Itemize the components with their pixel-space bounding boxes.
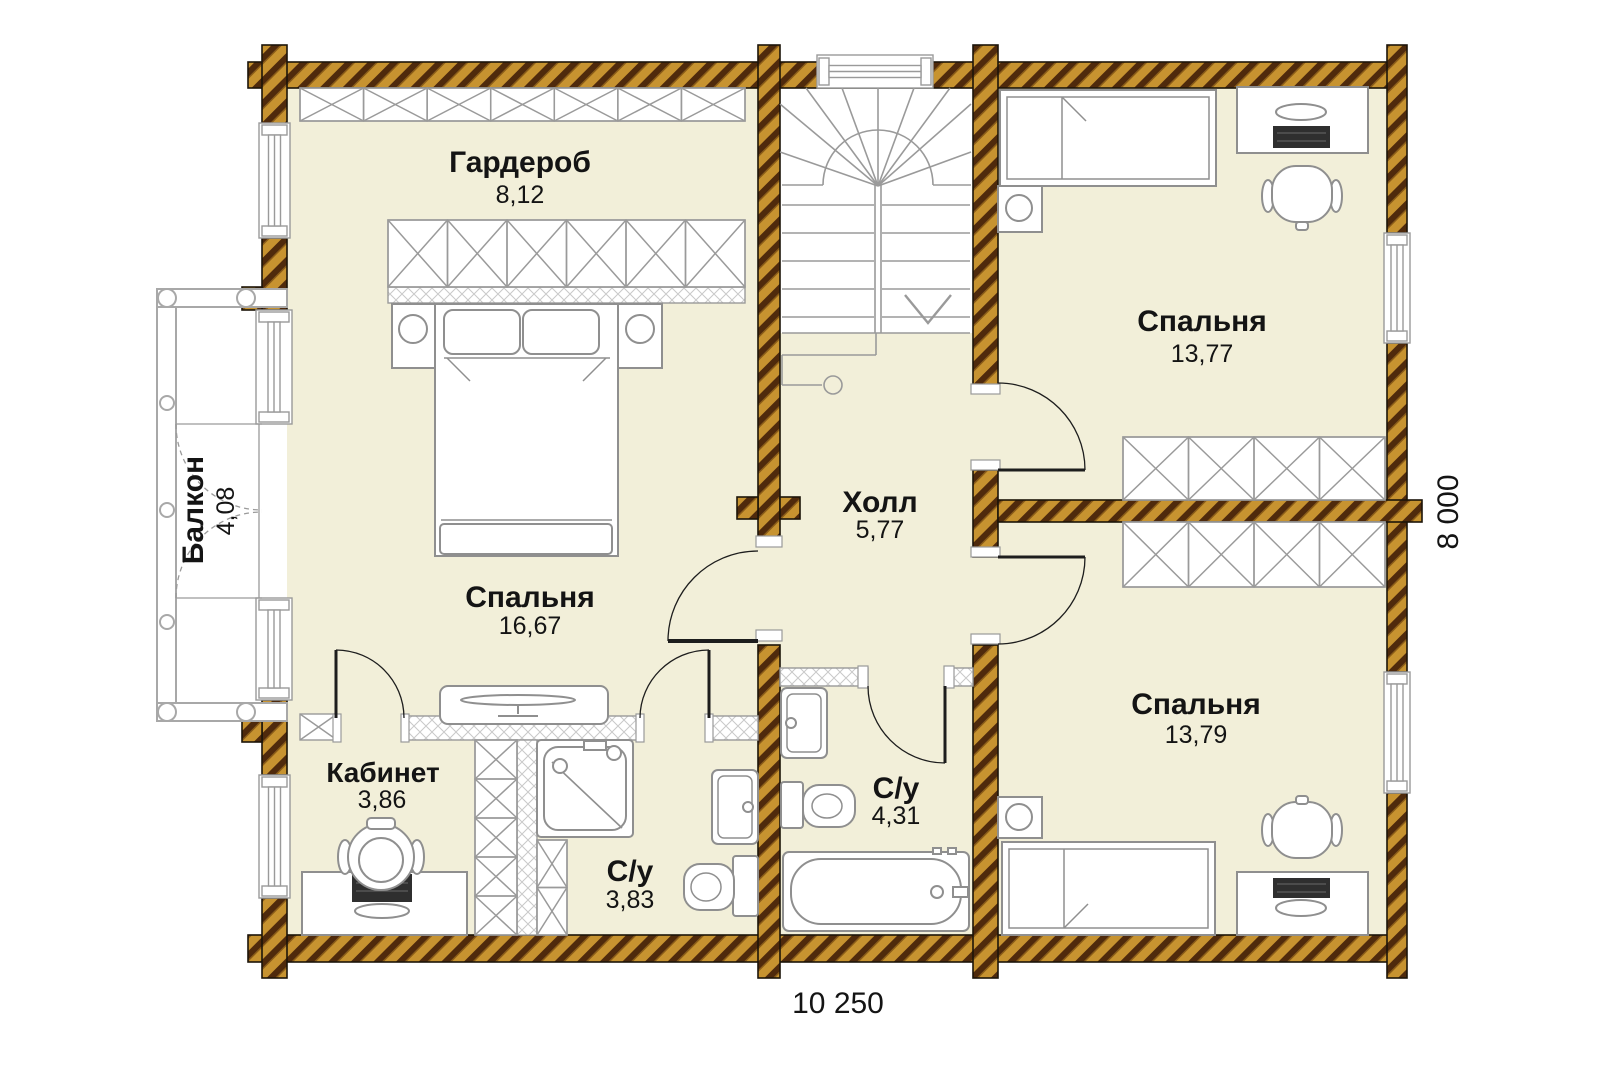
label-bedroom-bottom-name: Спальня [1131,688,1261,721]
desk-bottom-right [1237,872,1368,935]
label-bedroom-top-name: Спальня [1137,305,1267,338]
nightstand-lamp [1006,804,1032,830]
window [259,775,290,898]
partition-bath-top-left [780,668,868,686]
floor-plan-page: Гардероб 8,12 Спальня 16,67 Балкон 4,08 … [0,0,1601,1080]
toilet-small-bath [684,856,758,916]
window [1384,672,1410,793]
bathtub [783,848,969,931]
vent-shaft [300,714,337,740]
label-bath-big-name: С/у [873,772,920,805]
window [256,310,292,424]
label-bedroom-bottom-area: 13,79 [1165,721,1228,749]
dimension-width: 10 250 [792,987,884,1020]
nightstand-lamp [626,315,654,343]
window [1384,233,1410,343]
tv-stand-master [440,686,608,724]
wardrobe-strip [1123,522,1385,587]
wall-bottom [248,935,1405,962]
label-master-name: Спальня [465,581,595,614]
wall-left-d [262,898,287,978]
window [817,55,933,88]
sink-big-bath [781,688,827,758]
partition-master-bottom-right [709,716,758,740]
window [259,123,290,238]
floor-plan-canvas: Гардероб 8,12 Спальня 16,67 Балкон 4,08 … [0,0,1601,1080]
wardrobe-strip [1123,437,1385,500]
label-kabinet-name: Кабинет [326,757,439,788]
wardrobe-strip [537,840,567,935]
wall-right-a [1387,45,1407,233]
label-bath-small-area: 3,83 [606,886,655,914]
label-bedroom-top-area: 13,77 [1171,340,1234,368]
stairwell-floor [780,88,973,333]
desk-top-right [1237,87,1368,153]
label-master-area: 16,67 [499,612,562,640]
label-kabinet-area: 3,86 [358,786,407,814]
label-bath-big-area: 4,31 [872,802,921,830]
wall-right-c [1387,793,1407,978]
label-hall-area: 5,77 [856,516,905,544]
label-hall-name: Холл [842,486,917,519]
wall-bedrooms-divider [998,500,1422,522]
toilet-big-bath [781,782,855,828]
wall-mid1-a [758,45,780,537]
label-garderob-name: Гардероб [449,146,591,179]
shower [537,740,633,837]
label-garderob-area: 8,12 [496,181,545,209]
partition-kabinet-bath [517,740,537,935]
wall-mid2-b [973,470,998,557]
dimension-height: 8 000 [1432,474,1465,549]
label-balcony-name: Балкон [177,456,210,564]
wardrobe-strip [300,88,745,121]
wall-hall-stub-right [780,497,800,519]
nightstand-lamp [1006,195,1032,221]
wall-mid1-b [758,645,780,978]
wall-mid2-a [973,45,998,385]
wall-left-a [262,45,287,125]
sink-small-bath [712,770,758,844]
window [256,598,292,700]
label-bath-small-name: С/у [607,855,654,888]
partition-garderob [388,287,745,303]
wardrobe-strip [475,740,517,935]
wall-hall-stub-left [737,497,758,519]
wardrobe-strip [388,220,745,287]
wall-mid2-c [973,645,998,978]
nightstand-lamp [399,315,427,343]
label-balcony-area: 4,08 [212,487,240,536]
